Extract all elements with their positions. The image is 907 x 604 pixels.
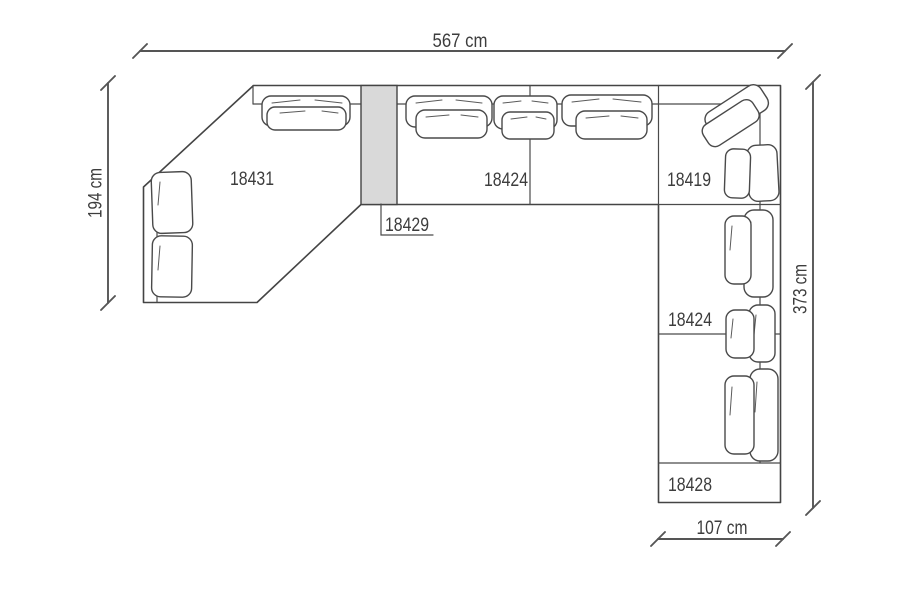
pillow [726,310,754,358]
pillow [151,236,192,298]
pillow [502,112,554,139]
floorplan-page: 18431 18424 18419 18424 18428 18429 567 … [0,0,907,604]
chaise-top-pillow-group [262,96,350,130]
module-label-connector: 18429 [385,215,429,236]
dimension-label-left: 194 cm [86,168,107,218]
right-sofa-pillow-group-3 [725,369,778,461]
top-sofa-pillow-group-1 [406,96,492,138]
connector-label-group: 18429 [381,204,433,236]
connector-element [361,86,397,205]
sofa-outline [144,86,781,503]
pillow [725,216,751,284]
module-label-corner: 18419 [667,170,711,191]
dimension-left: 194 cm [86,76,115,310]
right-sofa-pillow-group-1 [725,210,773,297]
dimension-label-bottom: 107 cm [697,518,748,539]
pillow [747,144,780,201]
pillow [151,171,193,233]
module-label-right-sofa: 18424 [668,310,712,331]
right-sofa-pillow-group-2 [726,305,775,362]
pillow [576,111,647,139]
top-sofa-pillow-group-2 [494,96,557,139]
module-label-top-sofa: 18424 [484,170,528,191]
dimension-top: 567 cm [133,31,792,58]
pillow [416,110,487,138]
dimension-bottom: 107 cm [651,518,790,546]
floorplan-canvas: 18431 18424 18419 18424 18428 18429 567 … [0,0,907,604]
pillow [725,376,754,454]
module-label-chaise: 18431 [230,169,274,190]
dimension-label-top: 567 cm [433,31,488,52]
module-label-bench: 18428 [668,475,712,496]
pillow [724,149,751,199]
dimension-label-right: 373 cm [791,264,812,314]
dimension-right: 373 cm [791,75,820,515]
pillow [267,107,346,130]
